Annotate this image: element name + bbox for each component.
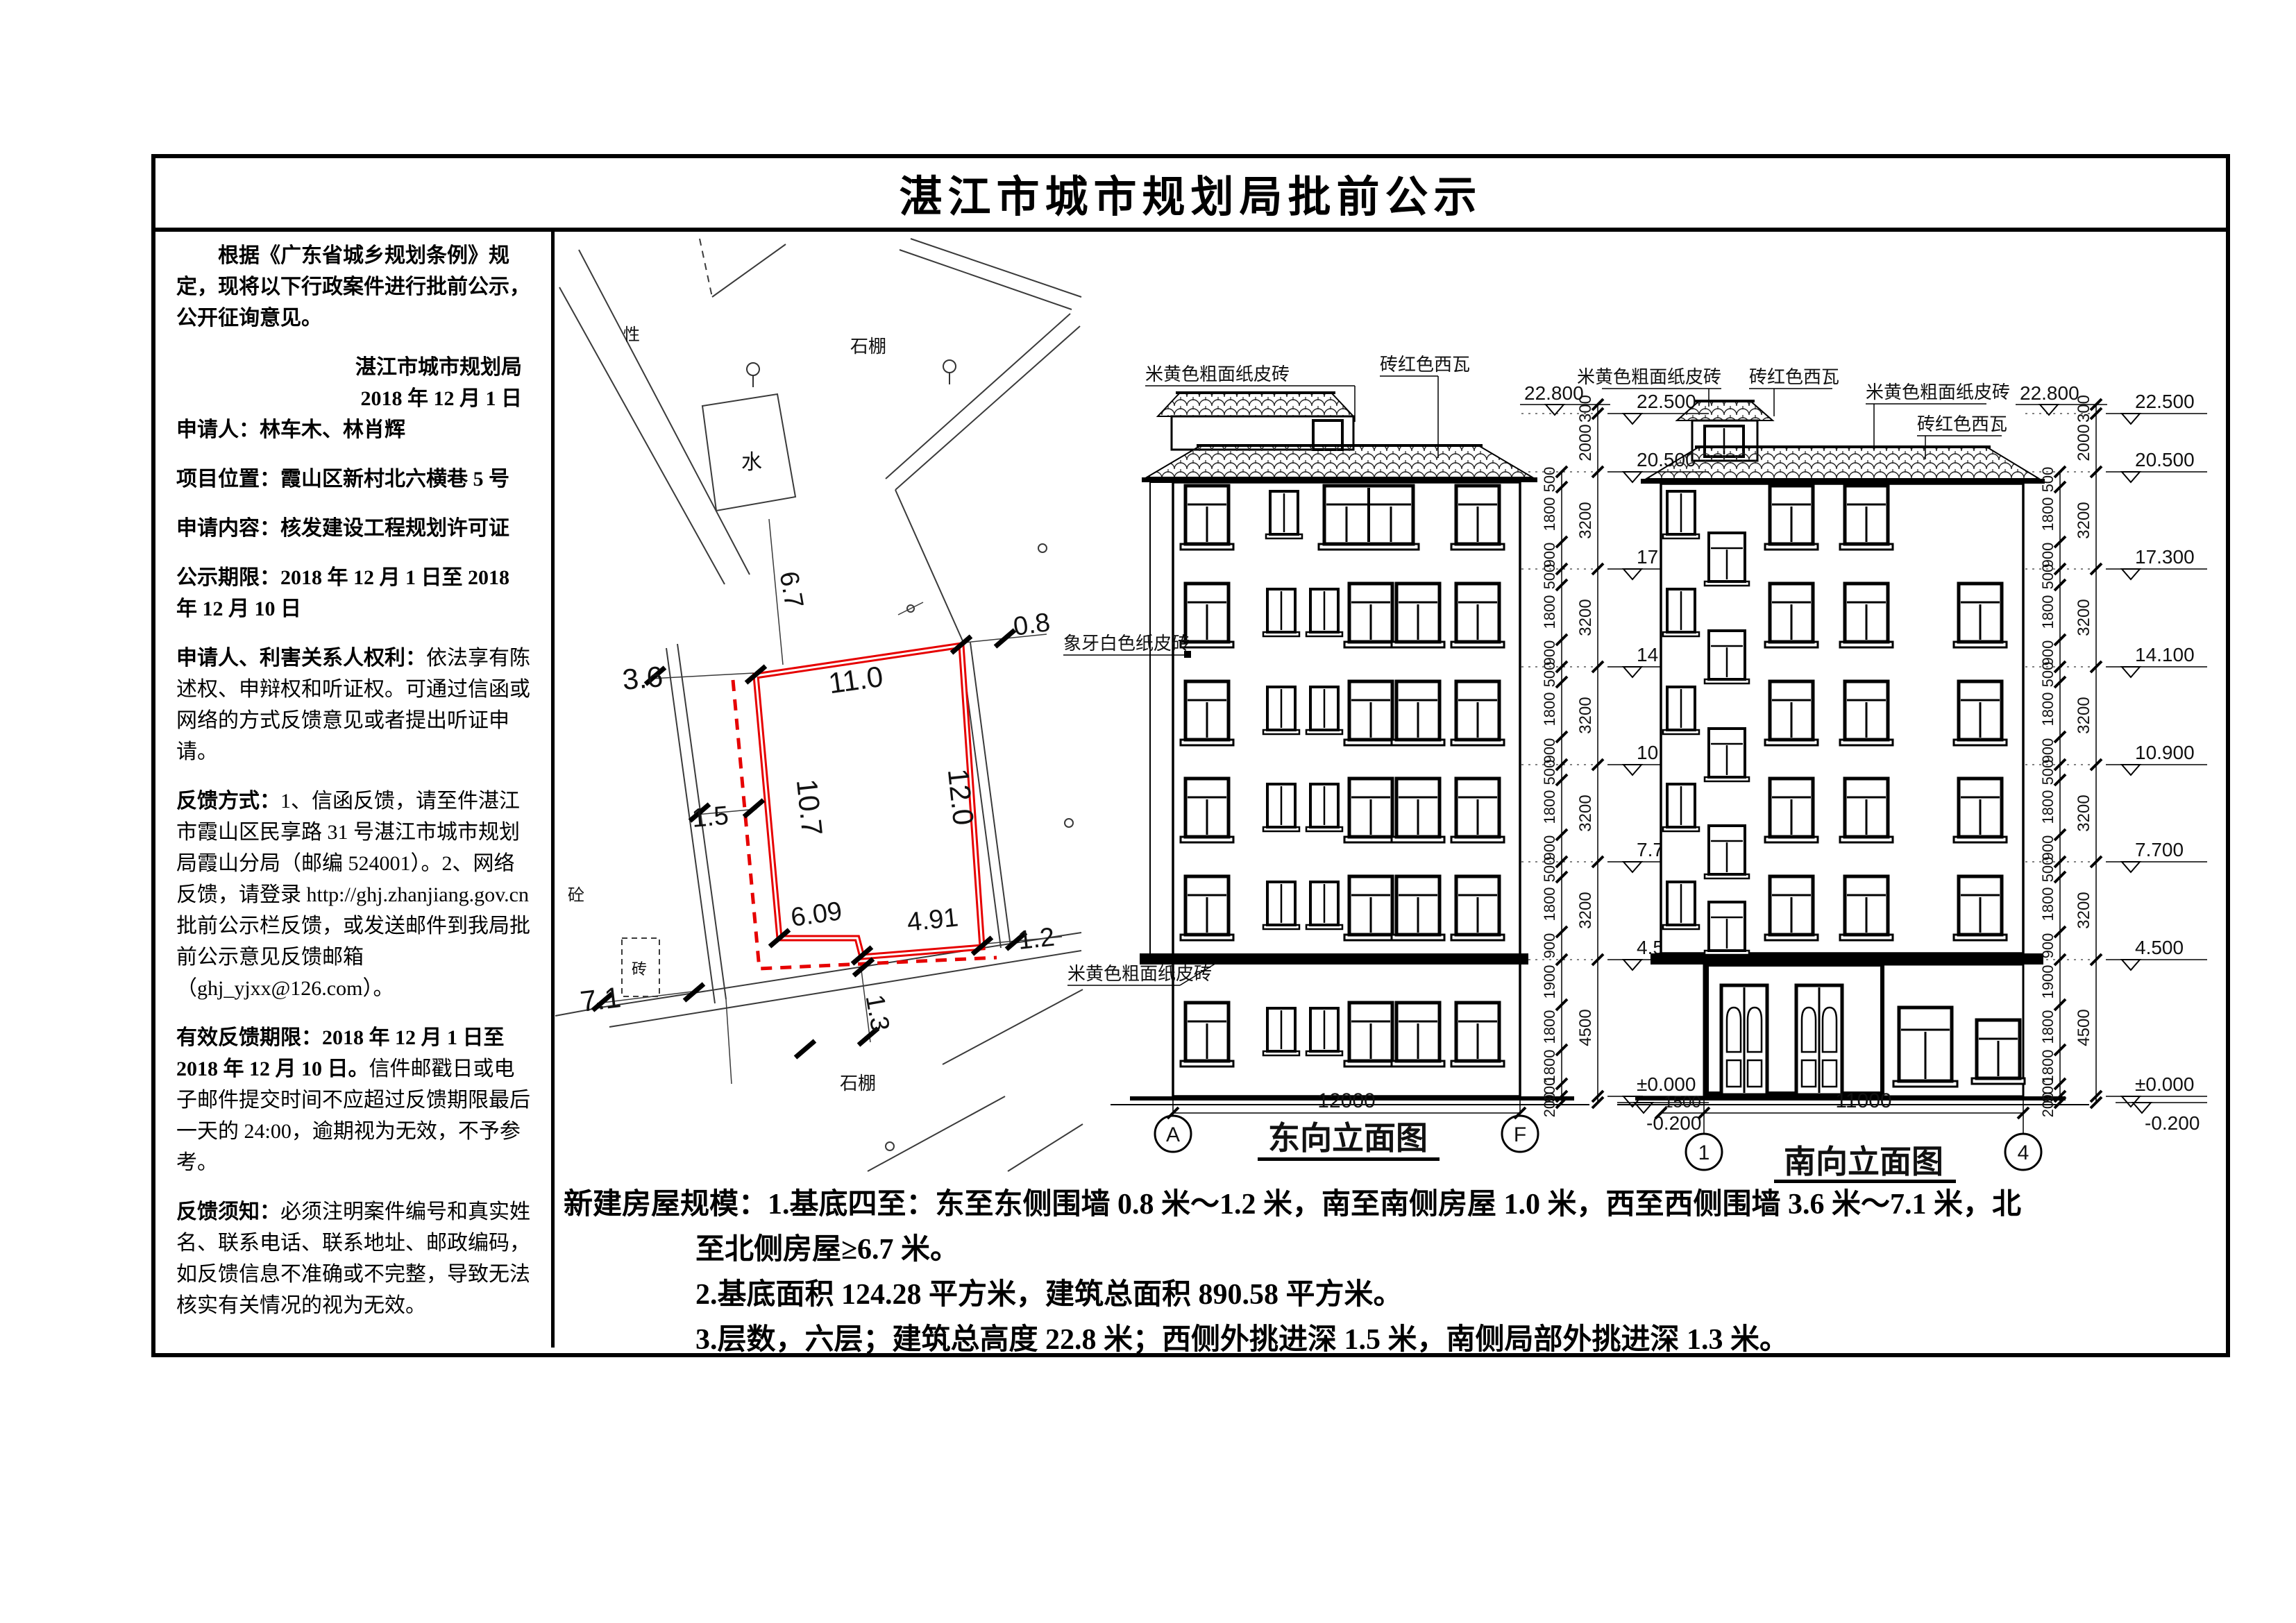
svg-text:1800: 1800 — [1541, 790, 1558, 824]
svg-text:3200: 3200 — [2075, 502, 2093, 538]
svg-text:1800: 1800 — [1541, 887, 1558, 921]
east-title: 东向立面图 — [1268, 1121, 1428, 1156]
svg-text:14.100: 14.100 — [2135, 644, 2195, 665]
svg-text:3200: 3200 — [2075, 599, 2093, 636]
svg-text:±0.000: ±0.000 — [2135, 1073, 2194, 1095]
svg-text:4.500: 4.500 — [2135, 937, 2184, 958]
svg-text:1800: 1800 — [1541, 498, 1558, 532]
east-penthouse-roof — [1158, 393, 1353, 416]
svg-text:500: 500 — [1541, 564, 1558, 590]
svg-text:500: 500 — [1541, 857, 1558, 883]
svg-text:20.500: 20.500 — [2135, 449, 2195, 470]
east-grid-right: F — [1514, 1123, 1526, 1146]
svg-text:7.700: 7.700 — [2135, 839, 2184, 860]
shed-top-label: 石棚 — [850, 337, 886, 357]
dim-north-side: 11.0 — [827, 660, 885, 699]
east-elevation: 米黄色粗面纸皮砖 砖红色西瓦 象牙白色纸皮砖 米黄色粗面纸皮砖 — [1063, 355, 1709, 1161]
svg-text:500: 500 — [1541, 760, 1558, 785]
south-elevation: 米黄色粗面纸皮砖 砖红色西瓦 米黄色粗面纸皮砖 砖红色西瓦 — [1577, 367, 2207, 1183]
south-main-roof — [1646, 447, 2039, 479]
svg-text:1800: 1800 — [2039, 595, 2057, 629]
south-note-pent-brick: 米黄色粗面纸皮砖 — [1577, 367, 1721, 387]
svg-text:1800: 1800 — [2039, 887, 2057, 921]
concrete-label: 砼 — [568, 886, 584, 905]
svg-text:2000: 2000 — [2075, 424, 2093, 461]
dim-west-side: 10.7 — [791, 777, 829, 837]
svg-text:1900: 1900 — [2039, 965, 2057, 999]
east-grid-left: A — [1166, 1123, 1180, 1146]
south-window-dims: 500 1800 900 500 1800 900 500 1800 900 5… — [2039, 467, 2057, 1118]
svg-text:4500: 4500 — [2075, 1009, 2093, 1046]
svg-text:500: 500 — [2039, 662, 2057, 688]
shed-bottom-label: 石棚 — [840, 1073, 876, 1094]
dim-north-gap: 6.7 — [774, 569, 809, 610]
east-note-roof-brick: 米黄色粗面纸皮砖 — [1145, 364, 1290, 384]
svg-text:3200: 3200 — [1576, 599, 1595, 636]
svg-text:500: 500 — [2039, 857, 2057, 883]
south-storey-dims: 300 2000 3200 3200 3200 3200 3200 4500 — [2075, 395, 2093, 1046]
east-top-level: 22.800 — [1524, 382, 1584, 404]
south-top-level: 22.800 — [2020, 382, 2079, 404]
south-note-roof-brick: 米黄色粗面纸皮砖 — [1866, 382, 2010, 402]
south-note-roof-tile: 砖红色西瓦 — [1917, 414, 2007, 434]
svg-text:1800: 1800 — [1541, 692, 1558, 726]
dim-east-gap2: 1.2 — [1017, 923, 1056, 955]
east-main-roof — [1147, 445, 1533, 477]
svg-text:4500: 4500 — [1576, 1009, 1595, 1046]
svg-text:-0.200: -0.200 — [1646, 1112, 1701, 1134]
svg-text:900: 900 — [1541, 933, 1558, 959]
svg-text:500: 500 — [1541, 662, 1558, 688]
dim-south-right: 4.91 — [906, 903, 960, 937]
dim-south-gap: 1.3 — [860, 992, 895, 1033]
south-grid-right: 4 — [2018, 1141, 2029, 1164]
svg-text:1800: 1800 — [2039, 1010, 2057, 1044]
east-slab-band — [1140, 953, 1528, 965]
svg-text:3200: 3200 — [2075, 892, 2093, 928]
svg-text:17.300: 17.300 — [2135, 546, 2195, 568]
svg-text:500: 500 — [2039, 467, 2057, 493]
south-title: 南向立面图 — [1784, 1144, 1943, 1180]
drawings-canvas: 11.0 12.0 10.7 6.09 4.91 6.7 0.8 1.2 3.6… — [0, 0, 2296, 1623]
dim-west-gap3: 7.1 — [578, 980, 623, 1018]
svg-text:22.500: 22.500 — [2135, 391, 2195, 412]
svg-text:-0.200: -0.200 — [2145, 1112, 2200, 1134]
svg-text:500: 500 — [2039, 760, 2057, 785]
east-storey-dims: 300 2000 3200 3200 3200 3200 3200 4500 — [1576, 395, 1595, 1046]
svg-text:3200: 3200 — [1576, 794, 1595, 831]
east-note-roof-tile: 砖红色西瓦 — [1380, 355, 1470, 375]
svg-text:3200: 3200 — [1576, 892, 1595, 928]
east-window-dims: 500 1800 900 500 1800 900 500 1800 900 5… — [1541, 467, 1558, 1118]
svg-text:1900: 1900 — [1541, 965, 1558, 999]
svg-text:1800: 1800 — [2039, 790, 2057, 824]
svg-text:3200: 3200 — [1576, 502, 1595, 538]
dim-west-gap2: 1.5 — [691, 801, 729, 833]
site-plan-labels: 水 石棚 石棚 性 砼 砖 — [568, 325, 886, 1094]
svg-text:1800: 1800 — [1541, 595, 1558, 629]
svg-text:1800: 1800 — [1541, 1010, 1558, 1044]
south-grid-left: 1 — [1698, 1141, 1710, 1164]
site-plan-ticks — [593, 630, 1026, 1057]
brick-label: 砖 — [632, 960, 647, 978]
site-plan-dim-text: 11.0 12.0 10.7 6.09 4.91 6.7 0.8 1.2 3.6… — [578, 569, 1056, 1033]
site-plan — [555, 239, 1083, 1171]
dim-south-left: 6.09 — [789, 897, 844, 933]
south-width-main: 11000 — [1835, 1089, 1891, 1112]
svg-text:3200: 3200 — [2075, 697, 2093, 733]
svg-text:1800: 1800 — [2039, 498, 2057, 532]
svg-text:22.500: 22.500 — [1637, 391, 1696, 412]
svg-text:200: 200 — [1541, 1092, 1558, 1118]
east-note-wall-brick: 象牙白色纸皮砖 — [1063, 634, 1190, 654]
pond-label: 水 — [741, 451, 762, 474]
svg-text:10.900: 10.900 — [2135, 742, 2195, 763]
south-width-left: 1500 — [1664, 1093, 1700, 1112]
svg-text:900: 900 — [2039, 933, 2057, 959]
svg-text:3200: 3200 — [2075, 794, 2093, 831]
stake-label: 性 — [623, 325, 640, 344]
dim-west-gap1: 3.6 — [621, 660, 664, 696]
svg-text:500: 500 — [1541, 467, 1558, 493]
svg-text:500: 500 — [2039, 564, 2057, 590]
svg-text:200: 200 — [2039, 1092, 2057, 1118]
svg-text:±0.000: ±0.000 — [1637, 1073, 1696, 1095]
dim-east-gap1: 0.8 — [1011, 608, 1052, 642]
east-width-dim: 12000 — [1317, 1089, 1375, 1112]
svg-text:3200: 3200 — [1576, 697, 1595, 733]
svg-text:1800: 1800 — [2039, 692, 2057, 726]
svg-text:2000: 2000 — [1576, 424, 1595, 461]
east-note-base-brick: 米黄色粗面纸皮砖 — [1067, 964, 1212, 984]
south-note-pent-tile: 砖红色西瓦 — [1749, 367, 1839, 387]
notice-page: 湛江市城市规划局批前公示 根据《广东省城乡规划条例》规定，现将以下行政案件进行批… — [0, 0, 2296, 1623]
dim-east-side: 12.0 — [942, 767, 980, 826]
